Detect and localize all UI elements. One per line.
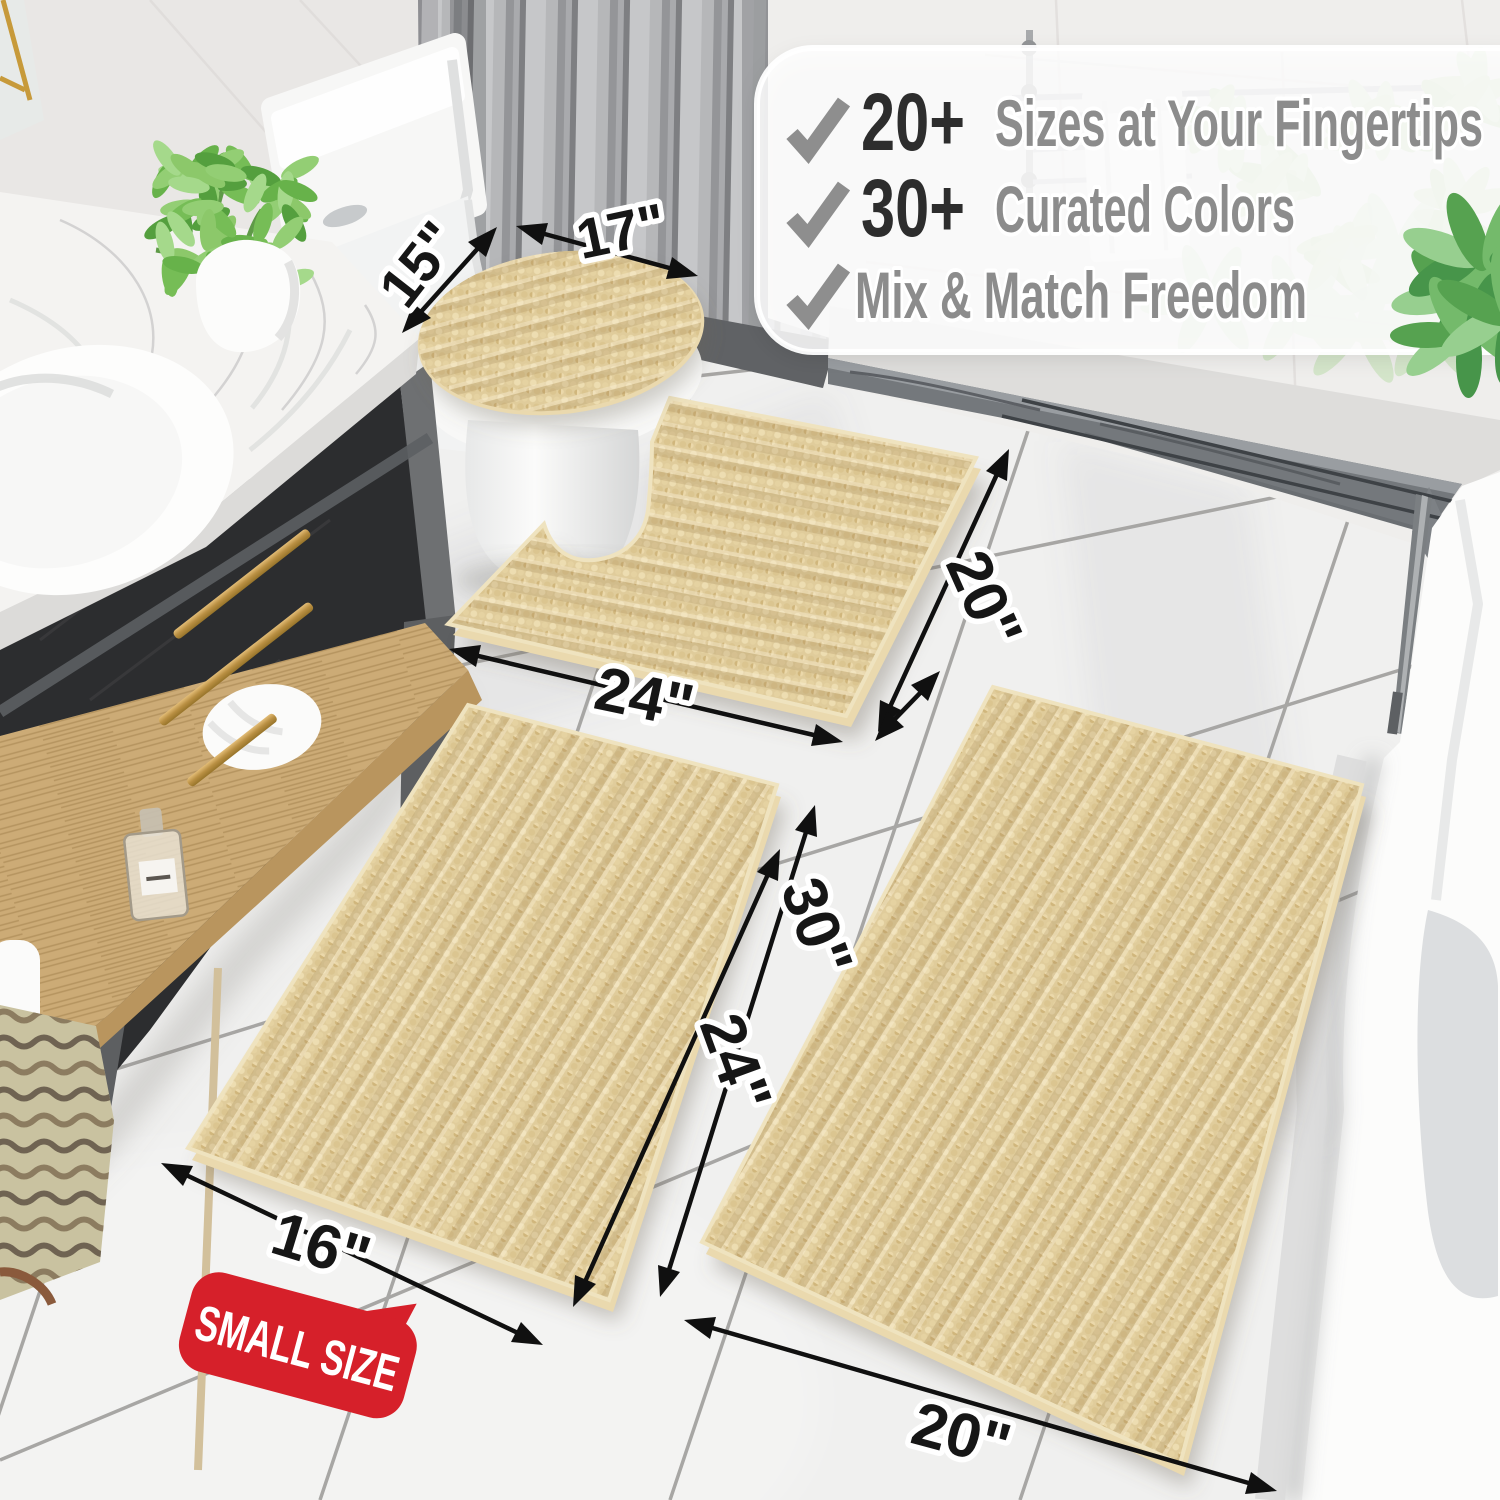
svg-text:20+: 20+ (861, 77, 965, 168)
svg-text:30+: 30+ (861, 163, 965, 254)
svg-text:Curated Colors: Curated Colors (995, 172, 1295, 246)
svg-text:Mix & Match Freedom: Mix & Match Freedom (855, 258, 1307, 332)
svg-text:Sizes at Your Fingertips: Sizes at Your Fingertips (995, 86, 1483, 160)
